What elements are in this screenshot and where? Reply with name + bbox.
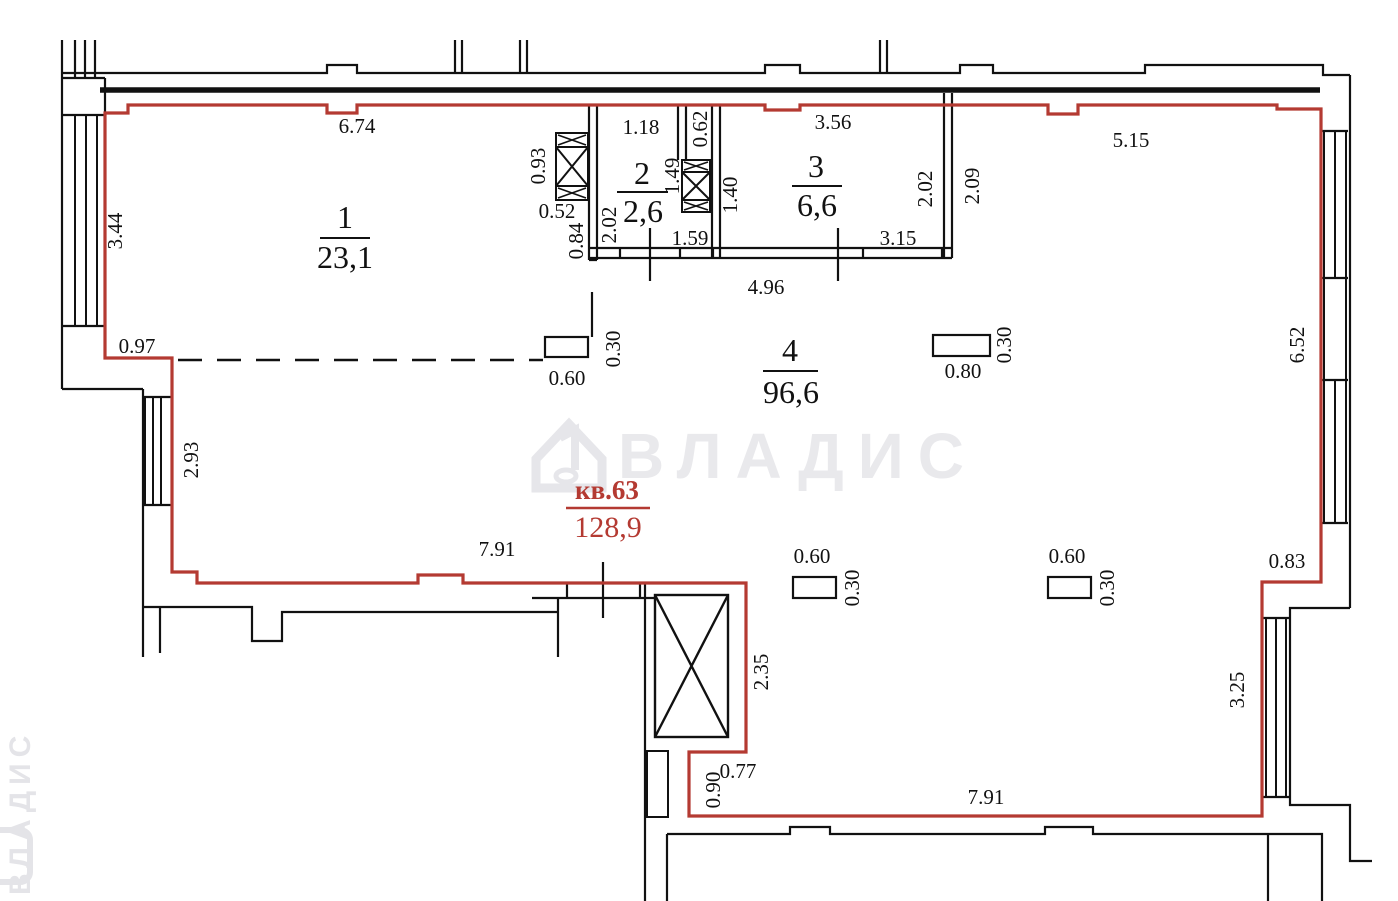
room-3-area: 6,6 bbox=[797, 187, 837, 223]
dim-room2-left-outer: 0.84 bbox=[564, 222, 588, 259]
room-4-label: 4 96,6 bbox=[763, 332, 819, 410]
dim-column3-height: 0.30 bbox=[840, 570, 864, 607]
room-2-number: 2 bbox=[634, 155, 650, 191]
watermark-left-edge: ВЛАДИС bbox=[0, 730, 37, 895]
dim-elevator-right: 2.35 bbox=[749, 654, 773, 691]
apartment-number: кв.63 bbox=[575, 475, 639, 505]
room-1-area: 23,1 bbox=[317, 239, 373, 275]
dim-room3-bottom: 3.15 bbox=[880, 226, 917, 250]
dim-bottom-step-height: 0.90 bbox=[701, 772, 725, 809]
window-right-upper bbox=[1324, 131, 1346, 278]
pilaster bbox=[647, 751, 668, 817]
wall-between-right-windows bbox=[1324, 278, 1346, 380]
dim-room2-left-inner: 2.02 bbox=[597, 207, 621, 244]
dim-shaft1-height: 0.93 bbox=[526, 148, 550, 185]
dim-column4-width: 0.60 bbox=[1049, 544, 1086, 568]
dim-mid-wall: 7.91 bbox=[479, 537, 516, 561]
window-right-middle bbox=[1324, 380, 1346, 523]
room-4-number: 4 bbox=[782, 332, 798, 368]
wall-room1-room2 bbox=[589, 105, 597, 260]
vent-shaft-2 bbox=[682, 160, 710, 212]
wall-room3-right bbox=[944, 93, 952, 258]
dim-left-mid: 2.93 bbox=[179, 442, 203, 479]
window-left-lower bbox=[145, 397, 161, 505]
dim-column1-width: 0.60 bbox=[549, 366, 586, 390]
room-3-number: 3 bbox=[808, 148, 824, 184]
dim-room2-bottom: 1.59 bbox=[672, 226, 709, 250]
watermark-brand-text: ВЛАДИС bbox=[618, 420, 978, 492]
dim-bottom: 7.91 bbox=[968, 785, 1005, 809]
dim-column2-width: 0.80 bbox=[945, 359, 982, 383]
dim-left-step: 0.97 bbox=[119, 334, 156, 358]
dim-column1-height: 0.30 bbox=[601, 331, 625, 368]
column-2 bbox=[933, 335, 990, 356]
window-right-lower bbox=[1266, 618, 1286, 797]
dim-room2-top: 1.18 bbox=[623, 115, 660, 139]
watermark-house-door bbox=[556, 470, 576, 482]
window-left-upper bbox=[75, 115, 97, 326]
dim-top-room1: 6.74 bbox=[339, 114, 376, 138]
dim-column4-height: 0.30 bbox=[1095, 570, 1119, 607]
column-3 bbox=[793, 577, 836, 598]
dim-right-step: 0.83 bbox=[1269, 549, 1306, 573]
dim-room3-top: 3.56 bbox=[815, 110, 852, 134]
dim-right-lower: 3.25 bbox=[1225, 672, 1249, 709]
dim-room3-right-outer: 2.09 bbox=[960, 168, 984, 205]
floor-plan-page: ВЛАДИС ВЛАДИС bbox=[0, 0, 1398, 901]
room-4-area: 96,6 bbox=[763, 374, 819, 410]
vent-shaft-1 bbox=[556, 133, 588, 200]
dim-rooms23-bottom: 4.96 bbox=[748, 275, 785, 299]
dim-bottom-step-width: 0.77 bbox=[720, 759, 757, 783]
dim-top-room4: 5.15 bbox=[1113, 128, 1150, 152]
floor-plan-svg: ВЛАДИС ВЛАДИС bbox=[0, 0, 1398, 901]
dim-left-upper: 3.44 bbox=[103, 212, 127, 249]
column-4 bbox=[1048, 577, 1091, 598]
dim-shaft2-height: 1.49 bbox=[660, 158, 684, 195]
watermark-house-numeral bbox=[560, 430, 575, 470]
dim-room3-right-inner: 2.02 bbox=[913, 171, 937, 208]
dim-right-upper: 6.52 bbox=[1285, 327, 1309, 364]
dim-column3-width: 0.60 bbox=[794, 544, 831, 568]
apartment-area: 128,9 bbox=[574, 511, 642, 544]
wall-room2-right bbox=[678, 105, 686, 160]
room-1-number: 1 bbox=[337, 199, 353, 235]
dim-column2-height: 0.30 bbox=[992, 327, 1016, 364]
dim-nook-top: 0.62 bbox=[688, 111, 712, 148]
room-1-label: 1 23,1 bbox=[317, 199, 373, 275]
dim-room3-left: 1.40 bbox=[718, 177, 742, 214]
dim-shaft1-width: 0.52 bbox=[539, 199, 576, 223]
room-2-area: 2,6 bbox=[623, 193, 663, 229]
room-3-label: 3 6,6 bbox=[792, 148, 842, 223]
apartment-label: кв.63 128,9 bbox=[566, 475, 650, 544]
column-1 bbox=[545, 337, 588, 357]
